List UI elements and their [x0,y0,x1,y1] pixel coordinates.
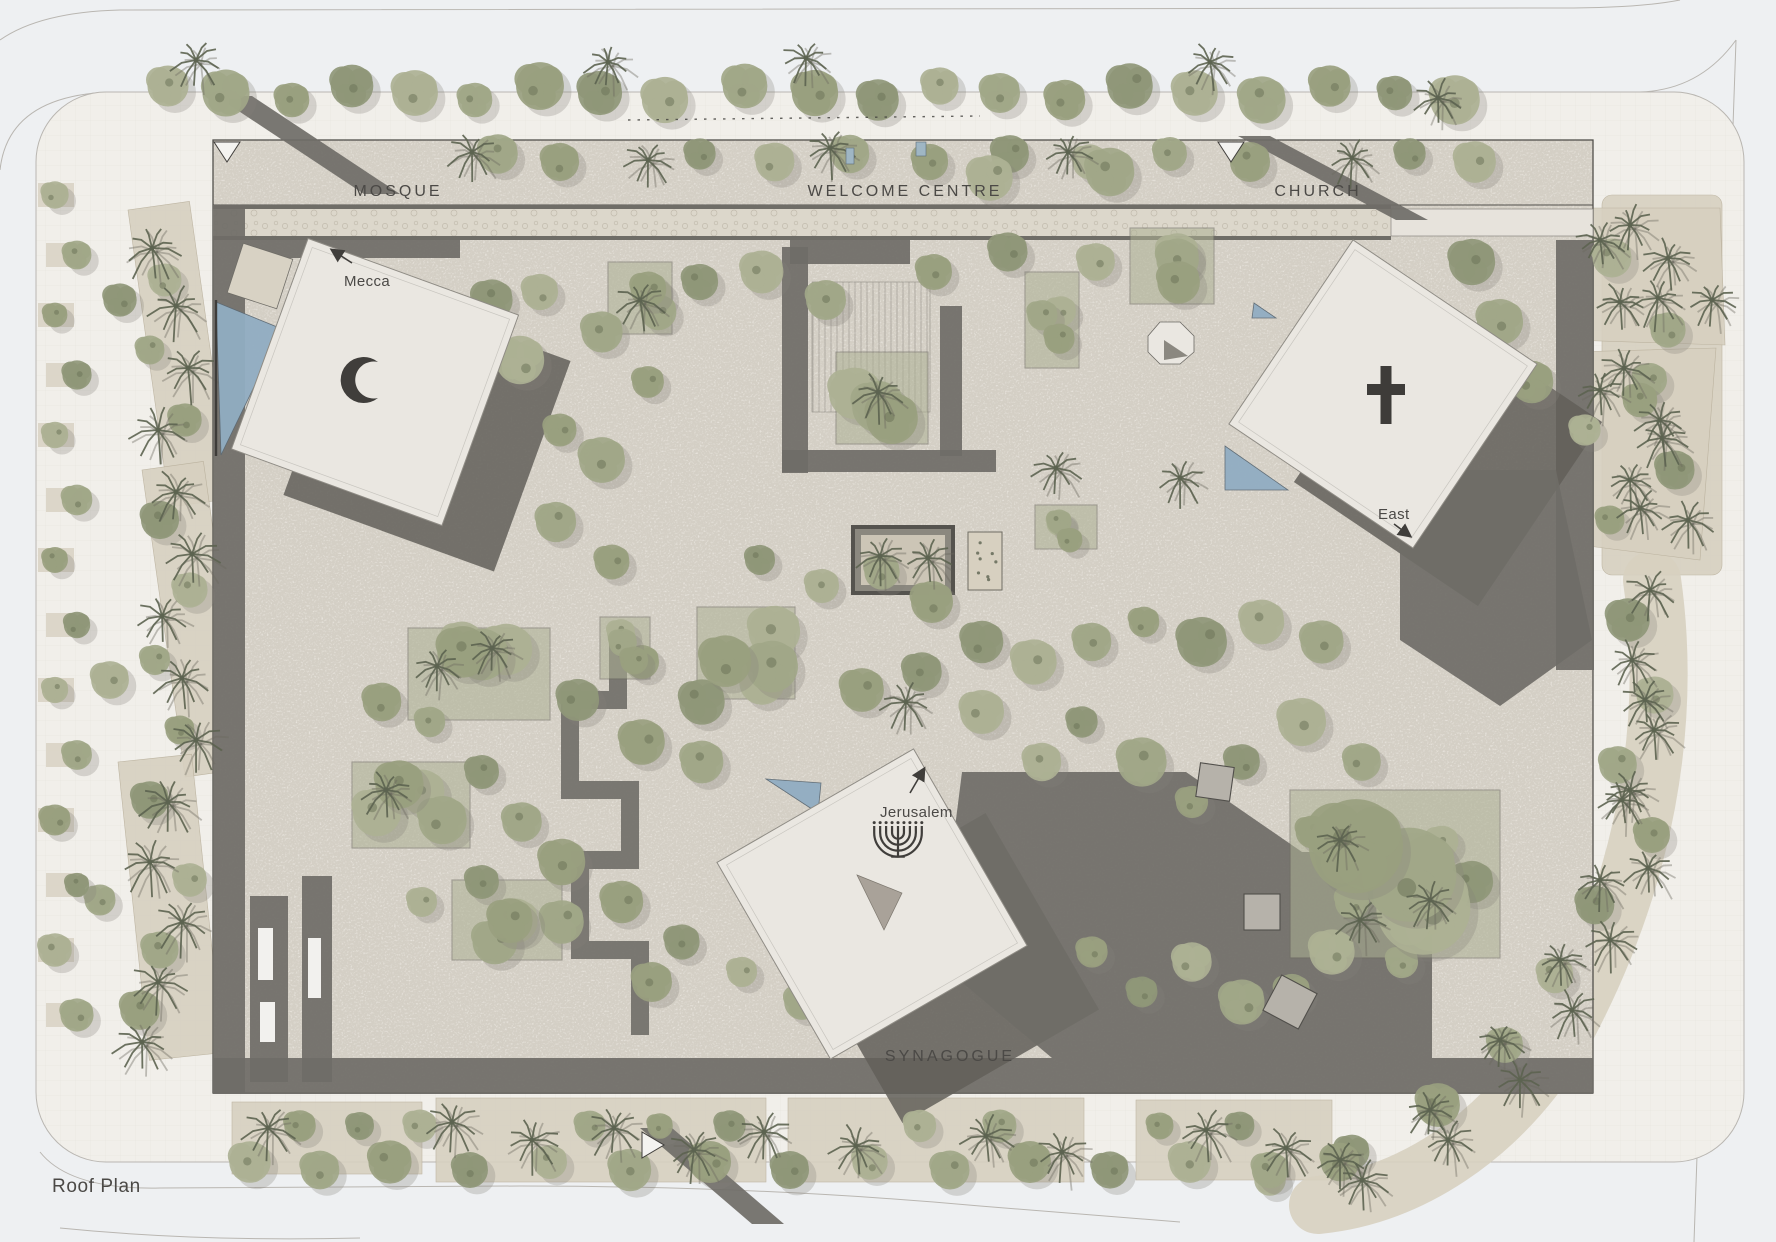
synagogue-label: SYNAGOGUE [885,1048,1015,1065]
mosque-label: MOSQUE [353,183,442,200]
roof-plan-canvas: MOSQUE WELCOME CENTRE CHURCH SYNAGOGUE M… [0,0,1776,1242]
mecca-label: Mecca [344,273,390,290]
church-label: CHURCH [1274,183,1361,200]
drawing-title: Roof Plan [52,1176,141,1197]
welcome-centre-label: WELCOME CENTRE [808,183,1003,200]
jerusalem-label: Jerusalem [880,804,953,821]
east-label: East [1378,506,1410,523]
